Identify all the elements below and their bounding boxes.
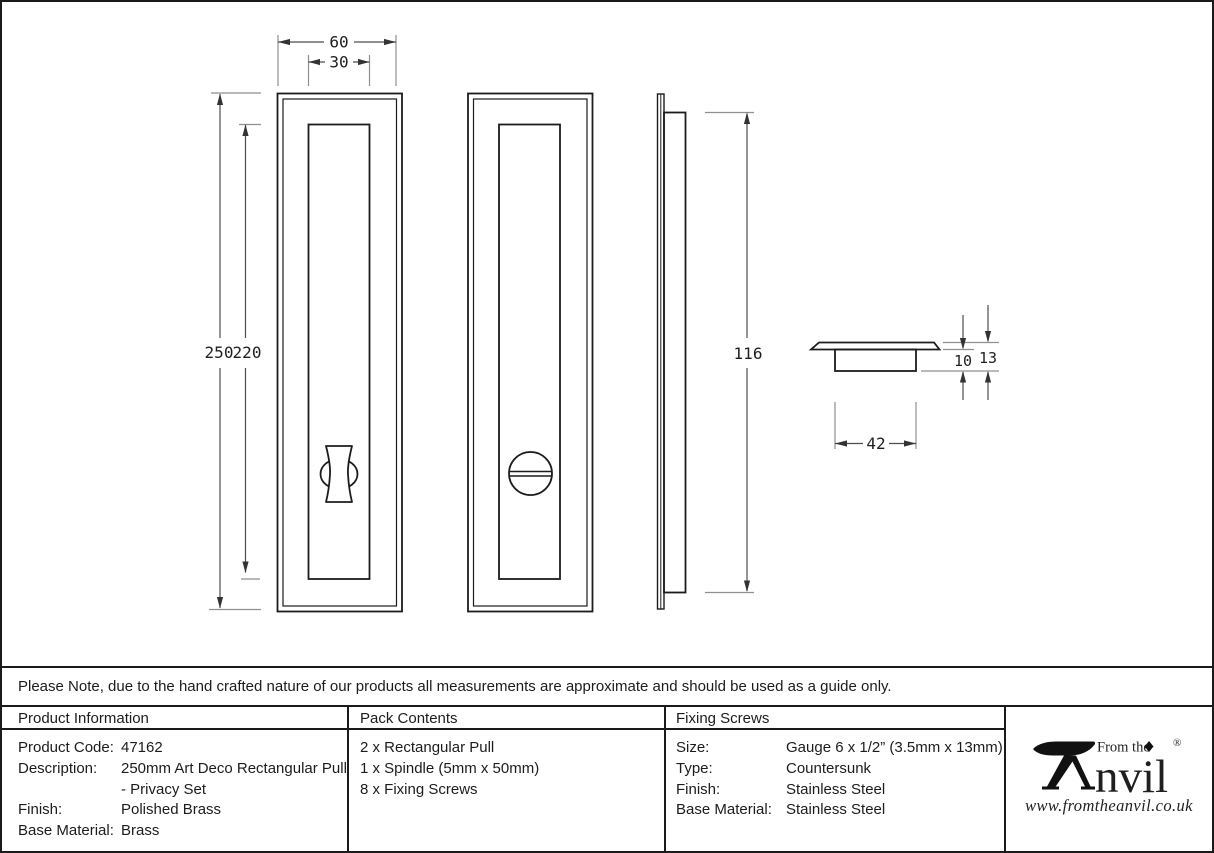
list-item: 2 x Rectangular Pull (360, 738, 664, 759)
note-text: Please Note, due to the hand crafted nat… (18, 678, 892, 695)
pull-recess (499, 125, 560, 580)
field-value: Brass (121, 821, 347, 842)
field-label: Type: (676, 759, 786, 780)
field-label: Size: (676, 738, 786, 759)
field-value: Countersunk (786, 759, 871, 780)
field-label: Base Material: (676, 800, 786, 821)
field-value: Stainless Steel (786, 780, 885, 801)
field-label: Finish: (676, 780, 786, 801)
dim-recess-height: 220 (233, 343, 262, 362)
extension-lines (209, 35, 999, 610)
table-row: Product Code: 47162 (18, 738, 347, 759)
datasheet-page: 60 30 250 220 116 42 10 13 Please Note, … (0, 0, 1214, 853)
note-bar: Please Note, due to the hand crafted nat… (2, 666, 1212, 707)
dim-plate-height: 250 (205, 343, 234, 362)
anvil-a-legs (1047, 756, 1092, 788)
dim-cup-width: 42 (866, 434, 885, 453)
field-value: 47162 (121, 738, 347, 759)
field-value: Stainless Steel (786, 800, 885, 821)
dimension-labels: 60 30 250 220 116 42 10 13 (205, 33, 997, 454)
table-row: Finish: Polished Brass (18, 800, 347, 821)
pull-plate-inner-border (474, 99, 588, 606)
dim-recess-width: 30 (329, 53, 348, 72)
pack-contents-header: Pack Contents (360, 707, 664, 730)
thumbturn-knob (326, 446, 352, 502)
front-view-coin-release-pull (468, 94, 593, 612)
anvil-a-foot-left (1042, 787, 1059, 790)
product-info-header: Product Information (18, 707, 347, 730)
list-item: 8 x Fixing Screws (360, 780, 664, 801)
table-row: Size: Gauge 6 x 1/2” (3.5mm x 13mm) (676, 738, 1004, 759)
product-info-cell: Product Information Product Code: 47162 … (2, 707, 347, 853)
fixing-screws-header: Fixing Screws (676, 707, 1004, 730)
coin-release-turn (509, 452, 552, 495)
dim-plate-width: 60 (329, 33, 348, 52)
registered-mark: ® (1173, 737, 1181, 749)
anvil-a-foot-right (1081, 787, 1095, 790)
dimension-lines (220, 42, 988, 608)
flush-plate-flange (811, 343, 940, 350)
field-label: Base Material: (18, 821, 121, 842)
anvil-a-glyph (1033, 742, 1095, 756)
table-row: Description: 250mm Art Deco Rectangular … (18, 759, 347, 801)
from-the-anvil-logo: From the nvil ® www.fromtheanvil.co.uk (1009, 730, 1209, 830)
field-value: 250mm Art Deco Rectangular Pull - Privac… (121, 759, 347, 801)
pull-recess (309, 125, 370, 580)
side-body (664, 113, 686, 593)
pull-plate-outline (468, 94, 593, 612)
table-row: Base Material: Stainless Steel (676, 800, 1004, 821)
dim-cup-depth: 10 (954, 352, 972, 370)
pack-contents-cell: Pack Contents 2 x Rectangular Pull 1 x S… (349, 707, 664, 853)
front-view-thumbturn-pull (278, 94, 403, 612)
technical-drawing: 60 30 250 220 116 42 10 13 (2, 2, 1212, 664)
pull-plate-outline (278, 94, 403, 612)
field-label: Product Code: (18, 738, 121, 759)
brand-website: www.fromtheanvil.co.uk (1025, 796, 1193, 815)
table-row: Base Material: Brass (18, 821, 347, 842)
profile-view-flush-plate (811, 343, 940, 372)
side-view-pull (658, 94, 686, 609)
pull-plate-inner-border (283, 99, 397, 606)
flush-plate-cup (835, 350, 916, 372)
list-item: 1 x Spindle (5mm x 50mm) (360, 759, 664, 780)
table-row: Finish: Stainless Steel (676, 780, 1004, 801)
table-row: Type: Countersunk (676, 759, 1004, 780)
field-label: Finish: (18, 800, 121, 821)
field-label: Description: (18, 759, 121, 801)
field-value: Gauge 6 x 1/2” (3.5mm x 13mm) (786, 738, 1003, 759)
dim-overall-depth: 13 (979, 349, 997, 367)
field-value: Polished Brass (121, 800, 347, 821)
brand-logo-cell: From the nvil ® www.fromtheanvil.co.uk (1006, 707, 1212, 853)
dim-side-body-height: 116 (734, 344, 763, 363)
fixing-screws-cell: Fixing Screws Size: Gauge 6 x 1/2” (3.5m… (666, 707, 1004, 853)
